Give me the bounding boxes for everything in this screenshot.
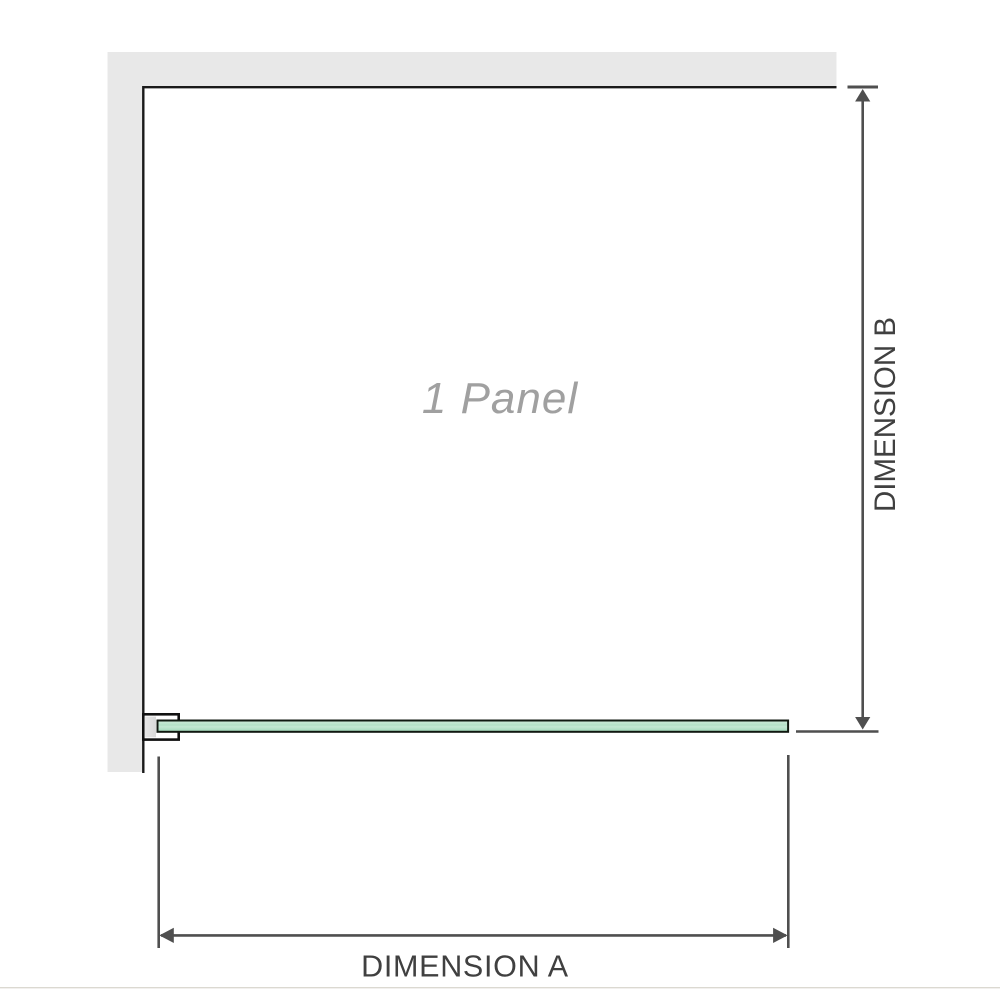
svg-text:DIMENSION A: DIMENSION A (361, 950, 569, 984)
svg-text:1 Panel: 1 Panel (422, 374, 578, 423)
svg-text:DIMENSION B: DIMENSION B (869, 317, 902, 512)
